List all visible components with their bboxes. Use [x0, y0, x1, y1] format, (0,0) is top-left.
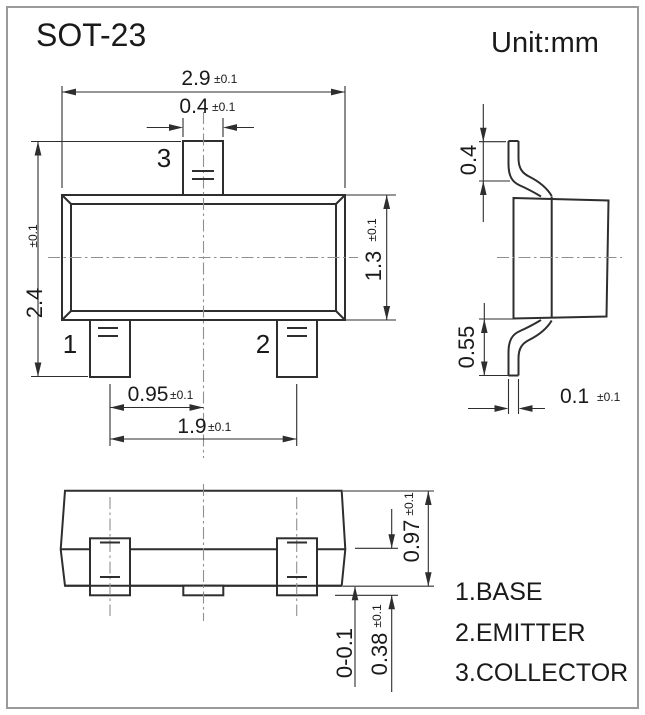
dim-tolerance: ±0.1 [208, 420, 232, 434]
dim-value: 1.3 [361, 251, 386, 282]
dim-lead-top-height: 0.4 [456, 104, 510, 222]
dim-value: 1.9 [177, 415, 206, 438]
base-emitter-lead-profile [509, 320, 552, 376]
dim-tolerance: ±0.1 [212, 100, 236, 114]
dim-value: 2.9 [181, 67, 210, 90]
collector-lead-profile [509, 141, 552, 197]
package-title: SOT-23 [36, 17, 146, 53]
dim-tolerance: ±0.1 [214, 72, 238, 86]
dim-value: 0.4 [456, 145, 481, 176]
dim-value: 0.4 [179, 95, 209, 118]
dim-value: 0-0.1 [332, 628, 357, 678]
pin-legend: 1.BASE 2.EMITTER 3.COLLECTOR [455, 578, 628, 687]
dim-value: 0.95 [128, 383, 169, 406]
dim-tab-width: 0.4 ±0.1 [147, 95, 254, 137]
dim-tolerance: ±0.1 [597, 390, 621, 404]
dim-tolerance: ±0.1 [26, 224, 40, 248]
dim-value: 0.55 [454, 326, 479, 369]
package-body-side [514, 198, 609, 319]
dim-value: 0.38 [367, 633, 392, 676]
dim-tolerance: ±0.1 [402, 492, 416, 516]
dim-lead-thickness: 0.1 ±0.1 [468, 379, 621, 414]
pin1-label: 1 [63, 329, 77, 359]
unit-label: Unit:mm [491, 27, 599, 59]
pin2-label: 2 [256, 329, 270, 359]
dim-tolerance: ±0.1 [170, 388, 194, 402]
dim-lead-bottom-height: 0.55 [454, 303, 514, 376]
side-view: 0.4 0.55 0.1 ±0.1 [454, 104, 622, 414]
dim-value: 0.97 [399, 520, 424, 563]
legend-pin2: 2.EMITTER [455, 619, 586, 647]
legend-pin1: 1.BASE [455, 578, 543, 606]
dim-tolerance: ±0.1 [365, 218, 379, 242]
top-view: 3 1 2 2.9 ±0.1 0.4 ±0.1 2.4 ±0.1 1. [22, 67, 396, 458]
dim-standoff: 0-0.1 [332, 586, 358, 687]
dim-value: 2.4 [22, 288, 47, 319]
dim-package-height: 0.97 ±0.1 [343, 491, 434, 586]
pin3-label: 3 [157, 143, 171, 173]
datasheet-package-drawing: SOT-23 Unit:mm 3 1 2 2.9 ±0.1 [0, 0, 645, 715]
front-view: 0.97 ±0.1 0.38 ±0.1 0-0.1 [61, 484, 434, 692]
dim-value: 0.1 [560, 385, 589, 408]
dim-tolerance: ±0.1 [370, 604, 384, 628]
technical-drawing: SOT-23 Unit:mm 3 1 2 2.9 ±0.1 [0, 0, 645, 715]
legend-pin3: 3.COLLECTOR [455, 659, 628, 687]
